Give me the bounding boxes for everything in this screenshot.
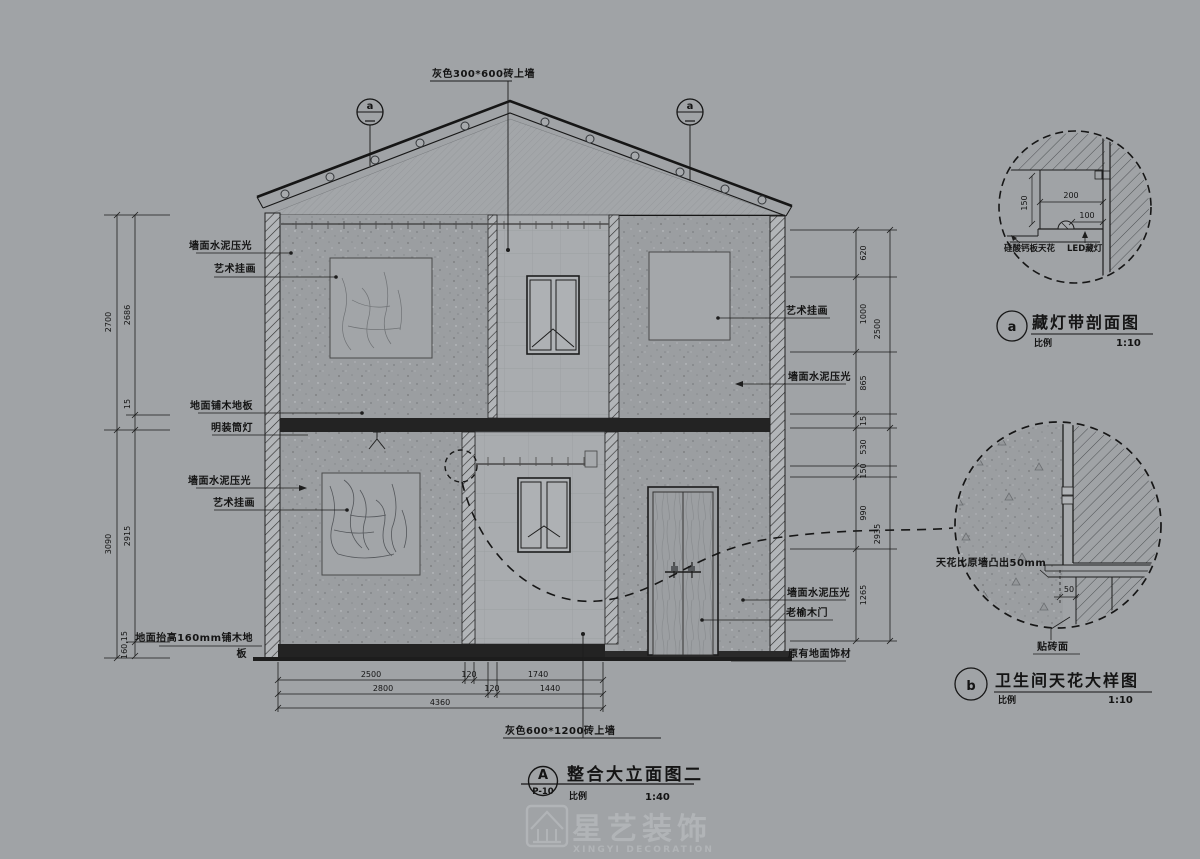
label-art-lower: 艺术挂画 bbox=[213, 496, 255, 509]
upper-ceiling-band bbox=[281, 221, 609, 229]
detail-b-scale-value: 1:10 bbox=[1108, 695, 1133, 706]
label-downlight: 明装筒灯 bbox=[211, 421, 253, 434]
label-wall-cement-lower-right: 墙面水泥压光 bbox=[787, 586, 850, 599]
dim-left-2915: 2915 bbox=[123, 526, 132, 546]
dim-bottom-4360: 4360 bbox=[430, 698, 450, 707]
dim-right-1265: 1265 bbox=[859, 585, 868, 605]
dim-right-2935: 2935 bbox=[873, 524, 882, 544]
lower-column-right bbox=[605, 432, 618, 644]
dim-right-865: 865 bbox=[859, 375, 868, 390]
ceiling-step bbox=[585, 451, 597, 467]
detail-a-marker: a bbox=[1008, 320, 1017, 335]
detail-a-scale-label: 比例 bbox=[1034, 337, 1052, 349]
label-wall-cement-upper: 墙面水泥压光 bbox=[189, 239, 252, 252]
dim-bottom-1740: 1740 bbox=[528, 670, 548, 679]
dim-left-15: 15 bbox=[123, 399, 132, 409]
art-lower-left bbox=[322, 473, 420, 575]
label-art-upper: 艺术挂画 bbox=[214, 262, 256, 275]
upper-window bbox=[527, 276, 579, 354]
dim-right-2500: 2500 bbox=[873, 319, 882, 339]
floor-slab bbox=[265, 418, 785, 432]
detail-a-dim-100: 100 bbox=[1079, 211, 1094, 220]
label-raised-floor-2: 板 bbox=[237, 647, 248, 660]
detail-b-dim-50: 50 bbox=[1064, 585, 1074, 594]
dim-left-2700: 2700 bbox=[104, 312, 113, 332]
right-outer-wall bbox=[770, 216, 785, 658]
art-upper-left bbox=[330, 258, 432, 358]
ground-line bbox=[253, 657, 792, 661]
label-wall-cement-upper-right: 墙面水泥压光 bbox=[788, 370, 851, 383]
section-marker-left-letter: a bbox=[367, 101, 374, 112]
dim-bottom-120a: 120 bbox=[461, 670, 476, 679]
detail-b-label-bump: 天花比原墙凸出50mm bbox=[936, 556, 1046, 569]
main-title-sheet: P-10 bbox=[532, 787, 554, 797]
wood-door bbox=[648, 487, 718, 655]
dim-right-620: 620 bbox=[859, 245, 868, 260]
detail-a-dim-150: 150 bbox=[1020, 195, 1029, 210]
detail-b-marker: b bbox=[966, 679, 975, 694]
left-outer-wall bbox=[265, 213, 280, 658]
label-orig-floor: 原有地面饰材 bbox=[788, 647, 851, 660]
dim-right-990: 990 bbox=[859, 505, 868, 520]
detail-a-label-led: LED藏灯 bbox=[1067, 243, 1103, 254]
lower-window bbox=[518, 478, 570, 552]
label-art-right: 艺术挂画 bbox=[786, 304, 828, 317]
detail-a-scale-value: 1:10 bbox=[1116, 338, 1141, 349]
label-wall-cement-lower: 墙面水泥压光 bbox=[188, 474, 251, 487]
elevation-drawing-svg: a a bbox=[0, 0, 1200, 859]
detail-b-scale-label: 比例 bbox=[998, 694, 1016, 706]
dim-bottom-1440: 1440 bbox=[540, 684, 560, 693]
detail-b-label-tile: 贴砖面 bbox=[1036, 640, 1069, 653]
dim-left-160-15: 160,15 bbox=[120, 631, 129, 659]
label-door: 老榆木门 bbox=[785, 606, 828, 619]
logo-subtitle: XINGYI DECORATION bbox=[573, 845, 714, 855]
lower-column-left bbox=[462, 432, 475, 644]
main-title-marker: A bbox=[538, 768, 548, 783]
upper-column-left bbox=[488, 215, 497, 418]
dim-bottom-120b: 120 bbox=[484, 684, 499, 693]
main-scale-label: 比例 bbox=[569, 790, 587, 802]
top-tile-label: 灰色300*600砖上墙 bbox=[432, 67, 535, 80]
detail-a-label-ceiling: 硅酸钙板天花 bbox=[1004, 243, 1056, 254]
dim-left-2686: 2686 bbox=[123, 305, 132, 325]
dim-right-150: 150 bbox=[859, 463, 868, 478]
dim-right-1000: 1000 bbox=[859, 304, 868, 324]
section-marker-right-letter: a bbox=[687, 101, 694, 112]
architectural-drawing-sheet: a a bbox=[0, 0, 1200, 859]
label-wood-floor: 地面铺木地板 bbox=[190, 399, 253, 412]
dim-right-15: 15 bbox=[859, 416, 868, 426]
dim-left-3090: 3090 bbox=[104, 534, 113, 554]
dim-bottom-2500: 2500 bbox=[361, 670, 381, 679]
main-title-text: 整合大立面图二 bbox=[567, 764, 704, 785]
raised-floor-slab bbox=[278, 644, 605, 657]
dim-bottom-2800: 2800 bbox=[373, 684, 393, 693]
detail-a-title: 藏灯带剖面图 bbox=[1032, 313, 1140, 332]
art-upper-right bbox=[649, 252, 730, 340]
detail-b-title: 卫生间天花大样图 bbox=[995, 671, 1139, 690]
upper-column-right bbox=[609, 215, 619, 418]
main-scale-value: 1:40 bbox=[645, 792, 670, 803]
logo-name: 星艺装饰 bbox=[572, 812, 712, 847]
dim-right-530: 530 bbox=[859, 439, 868, 454]
bottom-tile-label: 灰色600*1200砖上墙 bbox=[505, 724, 615, 737]
lower-ceiling-band bbox=[476, 457, 597, 466]
detail-a-dim-200: 200 bbox=[1063, 191, 1078, 200]
